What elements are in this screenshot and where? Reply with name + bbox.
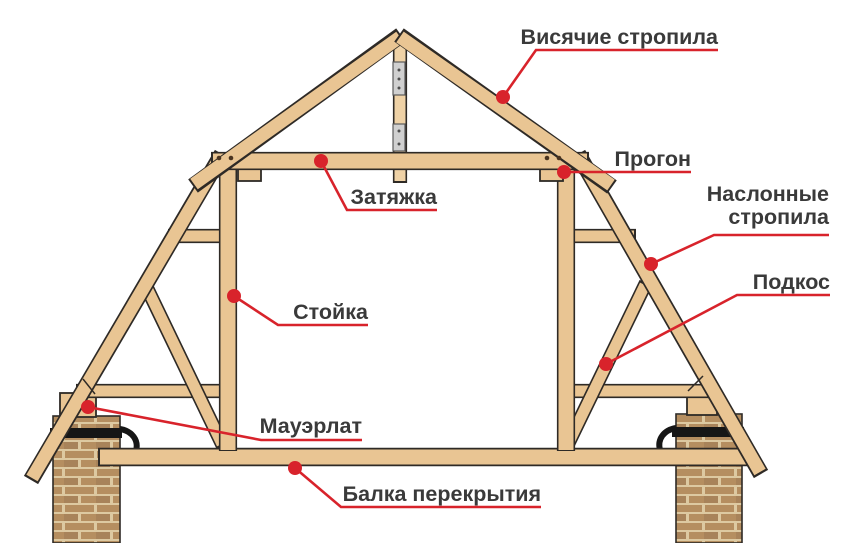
left-strut — [145, 284, 223, 446]
label-tie-beam: Затяжка — [351, 185, 439, 209]
leader-line — [503, 50, 718, 97]
leader-line — [651, 235, 829, 264]
label-anchor-dot — [81, 400, 95, 414]
roof-truss-diagram: Висячие стропила Прогон Затяжка Наслонны… — [0, 0, 850, 543]
label-anchor-dot — [557, 165, 571, 179]
truss-drawing: Висячие стропила Прогон Затяжка Наслонны… — [0, 0, 850, 543]
label-hanging-rafters: Висячие стропила — [521, 25, 719, 49]
callout-floor-beam: Балка перекрытия — [288, 461, 541, 507]
label-anchor-dot — [496, 90, 510, 104]
label-anchor-dot — [644, 257, 658, 271]
label-floor-beam: Балка перекрытия — [343, 482, 541, 506]
label-purlin: Прогон — [614, 147, 691, 171]
label-post: Стойка — [293, 300, 369, 324]
callout-hanging-rafters: Висячие стропила — [496, 25, 719, 104]
label-anchor-dot — [599, 357, 613, 371]
callout-post: Стойка — [227, 289, 369, 325]
label-strut: Подкос — [753, 270, 830, 294]
label-inclined-rafters-line2: стропила — [728, 205, 830, 229]
label-anchor-dot — [314, 154, 328, 168]
callout-inclined-rafters: Наслонные стропила — [644, 182, 830, 271]
label-mauerlat: Мауэрлат — [260, 414, 362, 438]
label-anchor-dot — [288, 461, 302, 475]
label-anchor-dot — [227, 289, 241, 303]
label-inclined-rafters-line1: Наслонные — [707, 182, 829, 206]
